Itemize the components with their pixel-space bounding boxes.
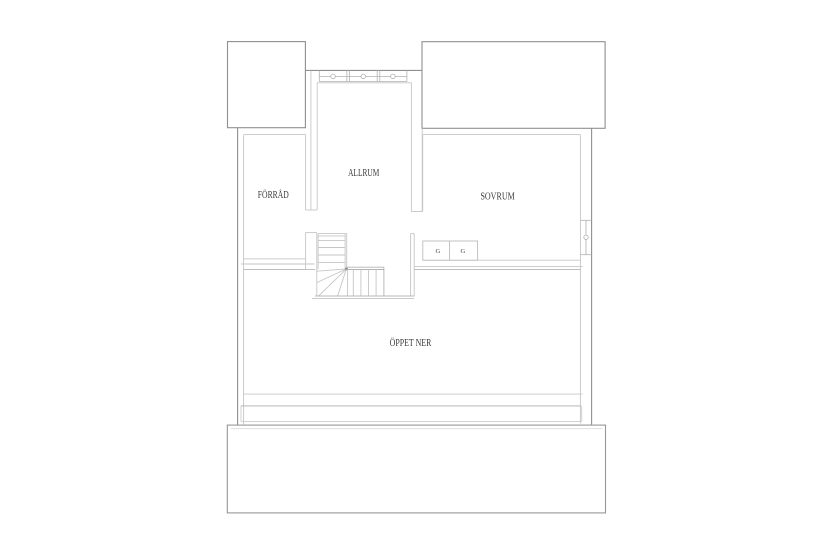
svg-text:SOVRUM: SOVRUM xyxy=(480,191,515,202)
svg-text:FÖRRÅD: FÖRRÅD xyxy=(258,189,289,201)
svg-text:ALLRUM: ALLRUM xyxy=(348,168,380,179)
svg-text:G: G xyxy=(436,248,441,255)
svg-text:G: G xyxy=(460,248,465,255)
svg-text:ÖPPET NER: ÖPPET NER xyxy=(390,337,432,349)
